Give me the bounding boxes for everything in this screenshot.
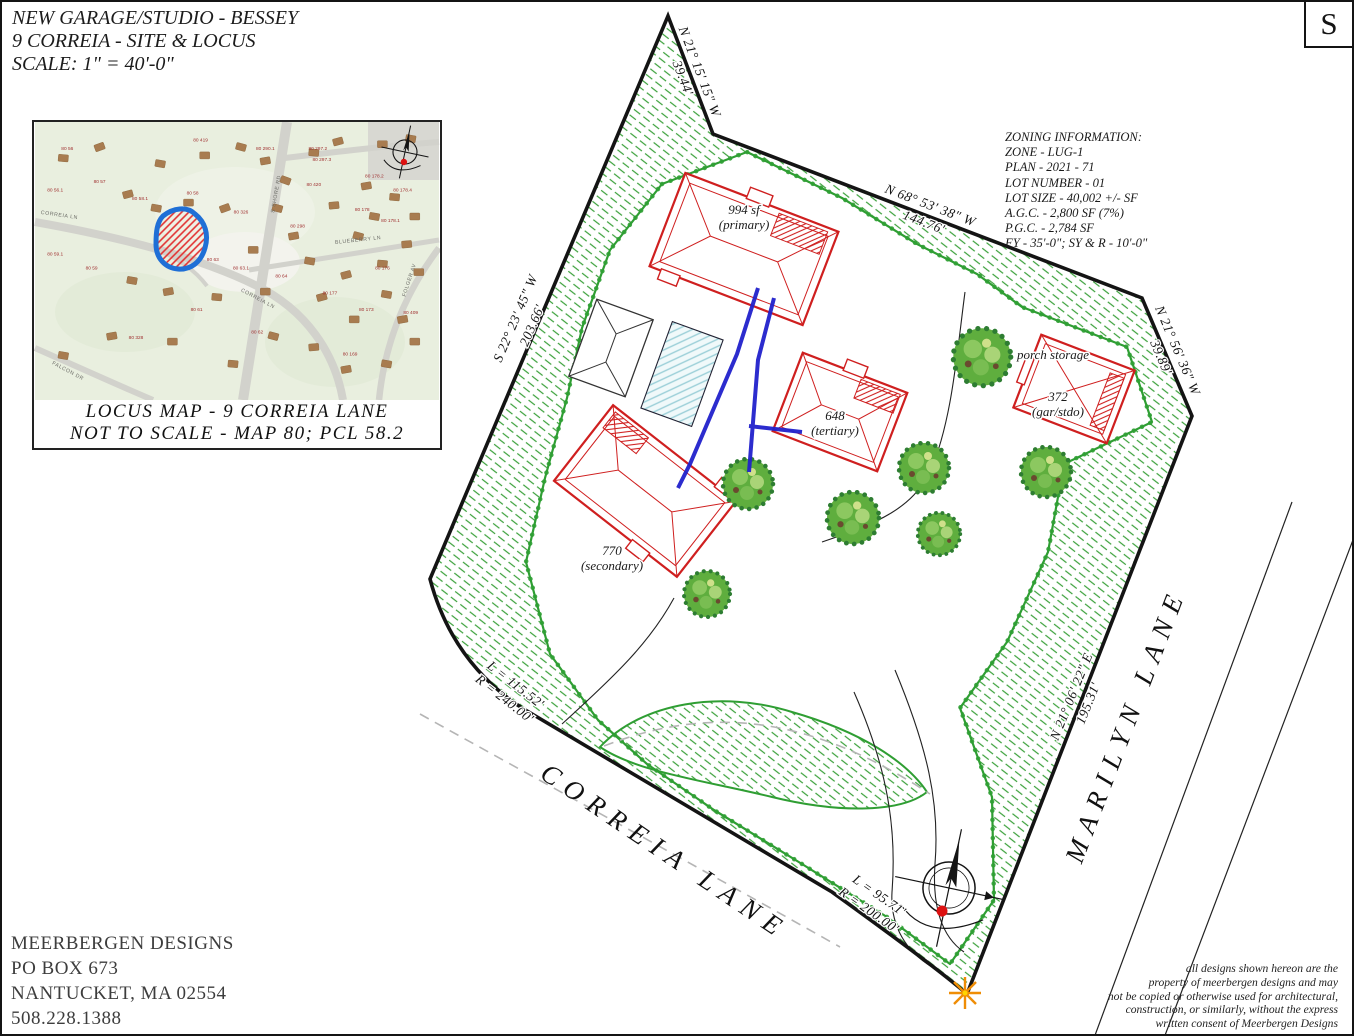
locus-parcel-label: 80 297.3 xyxy=(312,157,331,163)
zoning-information: ZONING INFORMATION: ZONE - LUG-1PLAN - 2… xyxy=(1005,130,1147,252)
drawing-sheet: N 21° 15' 15" W39.44'N 68° 53' 38" W144.… xyxy=(0,0,1354,1036)
locus-building xyxy=(155,159,166,168)
locus-parcel-label: 80 57 xyxy=(94,179,106,185)
locus-building xyxy=(309,343,320,351)
locus-parcel-label: 80 419 xyxy=(193,138,208,144)
locus-parcel-label: 80 298 xyxy=(290,224,305,230)
locus-building xyxy=(58,154,69,162)
locus-parcel-label: 80 328 xyxy=(129,335,144,341)
zoning-line: PLAN - 2021 - 71 xyxy=(1005,160,1147,175)
locus-building xyxy=(167,338,177,345)
locus-building xyxy=(163,287,174,296)
locus-map: 80 5680 41980 290.180 297.280 297.380 57… xyxy=(34,122,440,400)
tree-icon xyxy=(918,513,961,556)
locus-building xyxy=(212,293,223,301)
locus-building xyxy=(381,360,392,369)
svg-text:(tertiary): (tertiary) xyxy=(811,423,859,438)
locus-building xyxy=(361,182,372,191)
locus-building xyxy=(248,246,258,253)
locus-parcel-label: 80 178.4 xyxy=(393,188,412,194)
svg-text:372: 372 xyxy=(1047,389,1068,404)
firm-line: NANTUCKET, MA 02554 xyxy=(11,981,234,1006)
locus-building xyxy=(304,257,315,266)
locus-building xyxy=(58,351,69,360)
copyright-line: written consent of Meerbergen Designs xyxy=(1108,1017,1338,1031)
compass-red-dot xyxy=(936,905,949,918)
locus-building xyxy=(106,332,117,341)
locus-parcel-label: 80 64 xyxy=(275,274,287,280)
locus-parcel-label: 80 420 xyxy=(306,182,321,188)
zoning-line: LOT SIZE - 40,002 +/- SF xyxy=(1005,191,1147,206)
locus-parcel-label: 80 176 xyxy=(375,265,390,271)
title-line-1: NEW GARAGE/STUDIO - BESSEY xyxy=(12,7,298,30)
locus-parcel-label: 80 63.1 xyxy=(233,265,249,271)
zoning-title: ZONING INFORMATION: xyxy=(1005,130,1147,145)
locus-building xyxy=(151,204,162,213)
locus-building xyxy=(369,212,380,221)
locus-parcel-label: 80 58.1 xyxy=(132,196,148,202)
locus-building xyxy=(349,316,359,323)
locus-parcel-label: 80 169 xyxy=(343,352,358,358)
tree-icon xyxy=(684,571,730,617)
locus-building xyxy=(381,290,392,299)
zoning-line: P.G.C. - 2,784 SF xyxy=(1005,221,1147,236)
locus-building xyxy=(288,232,299,241)
locus-parcel-label: 80 59.1 xyxy=(47,251,63,257)
building-primary xyxy=(646,164,842,334)
locus-parcel-label: 80 178 xyxy=(355,207,370,213)
locus-building xyxy=(184,199,194,206)
locus-parcel-label: 80 290.1 xyxy=(256,146,275,152)
zoning-line: LOT NUMBER - 01 xyxy=(1005,176,1147,191)
locus-caption: LOCUS MAP - 9 CORREIA LANE NOT TO SCALE … xyxy=(34,401,440,445)
locus-building xyxy=(377,141,387,148)
firm-line: 508.228.1388 xyxy=(11,1006,234,1031)
firm-block: MEERBERGEN DESIGNSPO BOX 673NANTUCKET, M… xyxy=(11,931,234,1031)
locus-building xyxy=(410,338,420,345)
locus-building xyxy=(389,193,400,201)
locus-parcel-label: 80 409 xyxy=(403,310,418,316)
zoning-line: ZONE - LUG-1 xyxy=(1005,145,1147,160)
copyright-line: all designs shown hereon are the xyxy=(1108,962,1338,976)
title-line-3: SCALE: 1" = 40'-0" xyxy=(12,53,298,76)
locus-parcel-label: 80 178.2 xyxy=(365,174,384,180)
locus-caption-line-2: NOT TO SCALE - MAP 80; PCL 58.2 xyxy=(34,423,440,445)
svg-text:648: 648 xyxy=(825,408,845,423)
tree-icon xyxy=(953,328,1011,386)
sheet-label: S xyxy=(1320,6,1337,42)
svg-text:(primary): (primary) xyxy=(719,217,770,232)
title-line-2: 9 CORREIA - SITE & LOCUS xyxy=(12,30,298,53)
building-secondary xyxy=(548,397,742,584)
locus-parcel-label: 80 177 xyxy=(323,290,338,296)
locus-parcel-label: 80 58 xyxy=(187,190,199,196)
locus-building xyxy=(200,152,210,159)
locus-parcel-label: 80 62 xyxy=(251,329,263,335)
trees xyxy=(684,328,1071,617)
copyright-line: property of meerbergen designs and may xyxy=(1108,976,1338,990)
subject-parcel-highlight xyxy=(156,209,207,269)
svg-text:(gar/stdo): (gar/stdo) xyxy=(1032,404,1084,419)
locus-building xyxy=(260,288,270,295)
sheet-label-box: S xyxy=(1304,2,1352,48)
locus-building xyxy=(397,315,408,324)
firm-line: PO BOX 673 xyxy=(11,956,234,981)
locus-parcel-label: 80 297.2 xyxy=(308,146,327,152)
copyright-line: not be copied or otherwise used for arch… xyxy=(1108,990,1338,1004)
locus-building xyxy=(260,157,271,166)
tree-icon xyxy=(1021,447,1071,497)
zoning-line: A.G.C. - 2,800 SF (7%) xyxy=(1005,206,1147,221)
locus-parcel-label: 80 326 xyxy=(234,210,249,216)
tree-icon xyxy=(899,443,949,493)
locus-building xyxy=(401,240,412,248)
title-block: NEW GARAGE/STUDIO - BESSEY 9 CORREIA - S… xyxy=(12,7,298,76)
locus-parcel-label: 80 59 xyxy=(86,265,98,271)
locus-parcel-label: 80 178.1 xyxy=(381,218,400,224)
locus-parcel-label: 80 173 xyxy=(359,307,374,313)
zoning-line: FY - 35'-0"; SY & R - 10'-0" xyxy=(1005,236,1147,251)
locus-map-inset: 80 5680 41980 290.180 297.280 297.380 57… xyxy=(32,120,442,450)
locus-building xyxy=(410,213,420,220)
locus-building xyxy=(126,276,137,285)
locus-building xyxy=(341,365,352,374)
copyright-line: construction, or similarly, without the … xyxy=(1108,1003,1338,1017)
locus-parcel-label: 80 63 xyxy=(207,257,219,263)
locus-building xyxy=(329,201,340,209)
locus-parcel-label: 80 61 xyxy=(191,307,203,313)
porch-storage-label: porch storage xyxy=(1016,347,1089,362)
tree-icon xyxy=(827,492,879,544)
firm-line: MEERBERGEN DESIGNS xyxy=(11,931,234,956)
svg-text:994 sf: 994 sf xyxy=(728,202,762,217)
marilyn-lane-edges xyxy=(1094,502,1354,1036)
copyright-note: all designs shown hereon are theproperty… xyxy=(1108,962,1338,1031)
locus-caption-line-1: LOCUS MAP - 9 CORREIA LANE xyxy=(34,401,440,423)
svg-text:770: 770 xyxy=(602,543,622,558)
locus-parcel-label: 80 56 xyxy=(61,146,73,152)
locus-building xyxy=(228,360,239,368)
locus-parcel-label: 80 56.1 xyxy=(47,188,63,194)
svg-text:(secondary): (secondary) xyxy=(581,558,643,573)
